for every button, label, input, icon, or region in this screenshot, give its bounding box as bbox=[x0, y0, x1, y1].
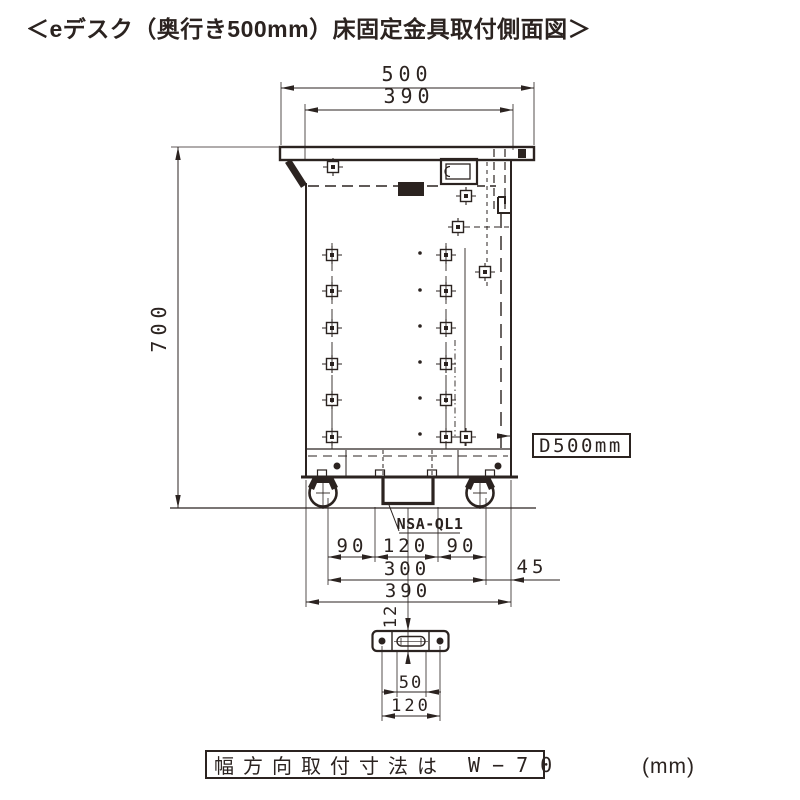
dim-hole-pitch-value: 120 bbox=[391, 696, 431, 716]
mounting-note-box: 幅方向取付寸法は W−70 bbox=[205, 750, 545, 779]
dim-span-value: 300 bbox=[384, 558, 430, 580]
technical-drawing: 500 390 700 NSA-QL1 D500mm bbox=[0, 0, 800, 800]
floor-bracket bbox=[383, 478, 433, 504]
desk-top bbox=[280, 147, 534, 160]
dim-span-300-offset-45: 300 45 bbox=[328, 556, 560, 580]
dim-offset-value: 45 bbox=[517, 556, 548, 578]
dim-slot-length-value: 50 bbox=[399, 673, 423, 693]
dim-height-700: 700 bbox=[147, 147, 280, 508]
caster-left bbox=[308, 477, 338, 509]
dim-bracket-center-value: 120 bbox=[383, 535, 429, 557]
dim-plate-width-value: 12 bbox=[381, 604, 401, 628]
dim-bracket-right-value: 90 bbox=[447, 535, 478, 557]
desk-side-view bbox=[170, 147, 536, 509]
bracket-model-label: NSA-QL1 bbox=[397, 515, 464, 533]
dim-bracket-left-value: 90 bbox=[337, 535, 368, 557]
drawing-sheet: ＜eデスク（奥行き500mm）床固定金具取付側面図＞ bbox=[0, 0, 800, 800]
pilot-hole-dots bbox=[418, 251, 422, 436]
top-clamp-block bbox=[398, 182, 424, 196]
mounting-note-text: 幅方向取付寸法は bbox=[214, 750, 446, 779]
under-top-tray bbox=[441, 159, 477, 184]
plate-hole-right bbox=[437, 638, 444, 645]
depth-tag: D500mm bbox=[533, 434, 630, 457]
caster-right bbox=[465, 477, 495, 509]
top-rear-bolt bbox=[518, 149, 526, 158]
mounting-note-value: W−70 bbox=[468, 753, 564, 777]
base-foot bbox=[301, 450, 518, 477]
dim-desk-depth-value: 500 bbox=[381, 62, 432, 86]
dim-top-inner-390: 390 bbox=[305, 84, 513, 160]
dim-height-value: 700 bbox=[147, 301, 171, 352]
dim-slot-50: 50 bbox=[382, 652, 441, 697]
unit-label: (mm) bbox=[642, 755, 695, 779]
depth-tag-label: D500mm bbox=[539, 435, 623, 457]
plate-hole-left bbox=[379, 638, 386, 645]
dim-top-inner-value: 390 bbox=[383, 84, 434, 108]
bracket-label: NSA-QL1 bbox=[389, 505, 463, 533]
front-edge-support bbox=[288, 161, 304, 186]
screw-symbols bbox=[322, 158, 495, 446]
